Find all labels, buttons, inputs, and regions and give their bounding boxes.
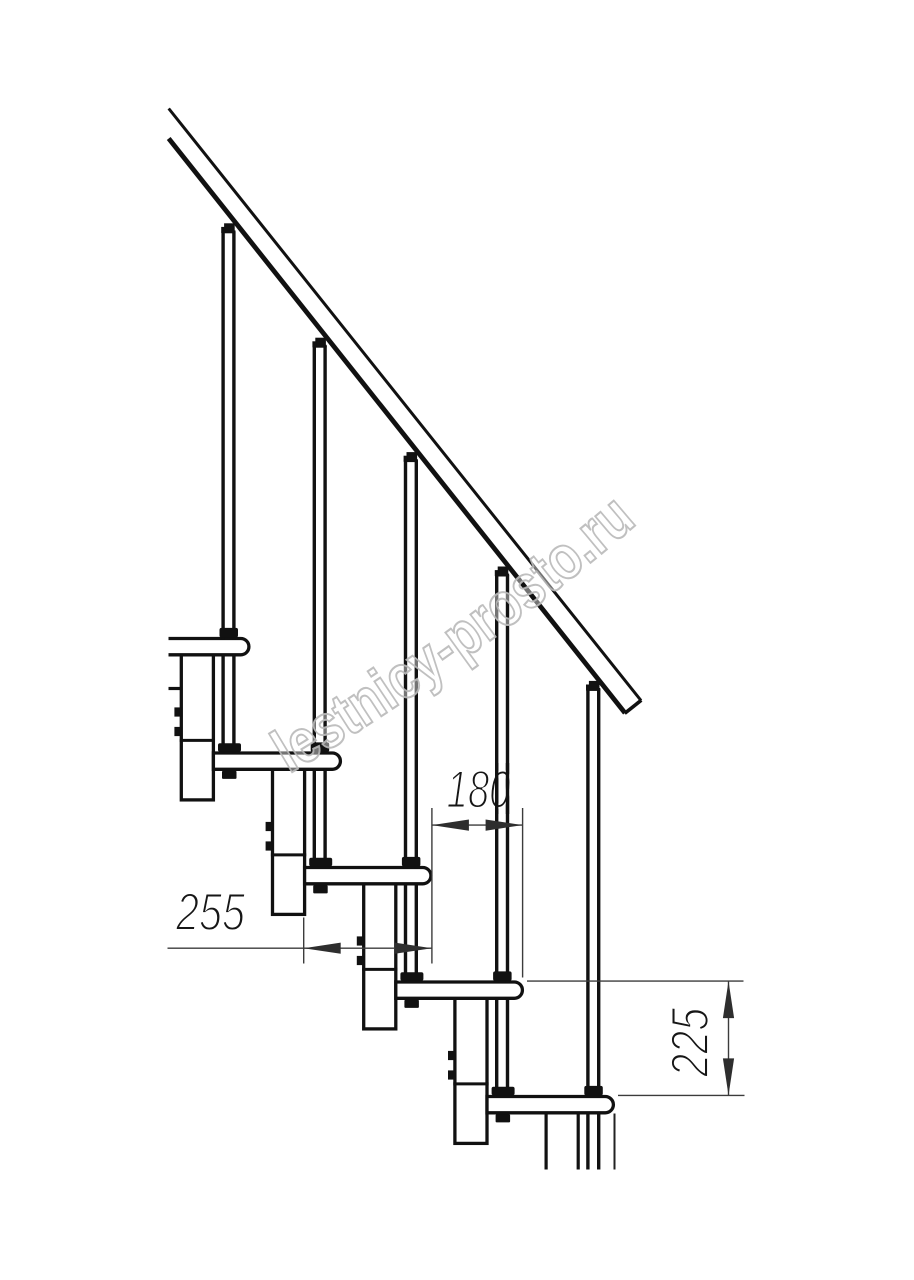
svg-text:225: 225 xyxy=(661,1007,720,1077)
svg-text:255: 255 xyxy=(175,883,245,942)
svg-text:180: 180 xyxy=(447,761,511,820)
